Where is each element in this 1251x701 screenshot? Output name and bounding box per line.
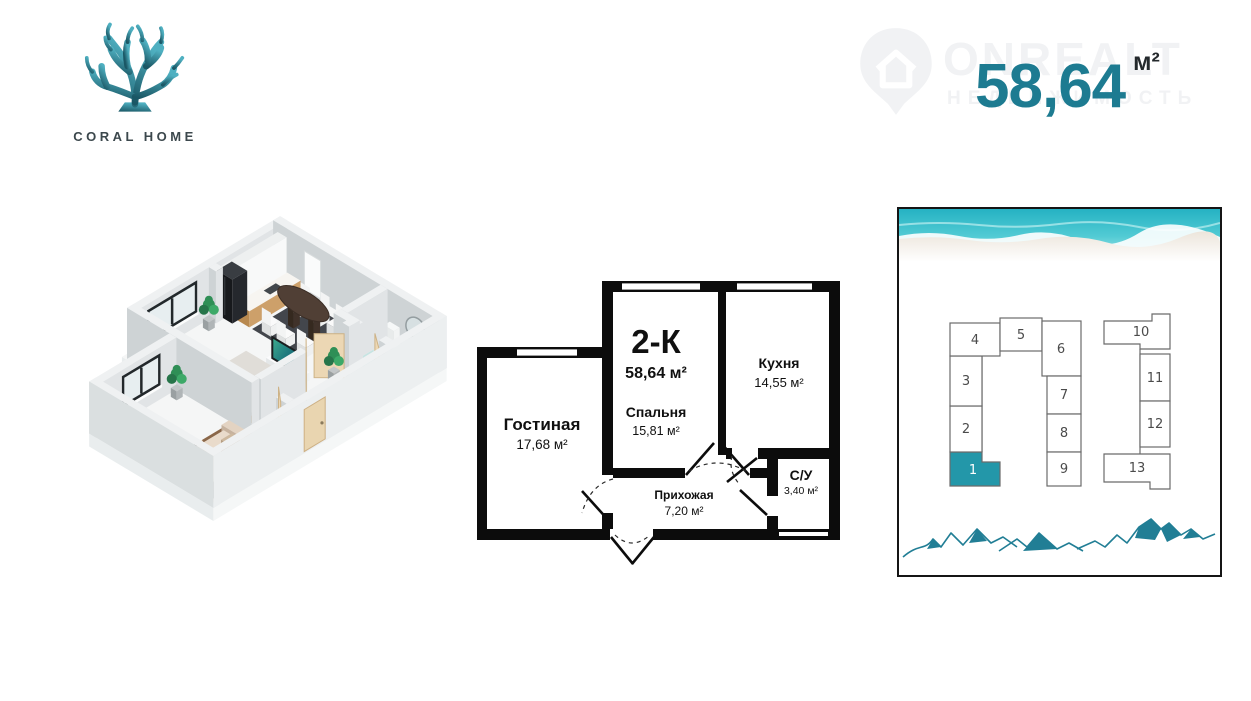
site-unit-label: 12 <box>1147 417 1164 432</box>
total-area-display: 58,64 м² <box>975 56 1125 118</box>
site-location-panel: 12345678910111213 <box>897 207 1222 577</box>
site-unit-label: 4 <box>971 333 979 348</box>
total-area-value: 58,64 <box>975 52 1125 121</box>
onrealt-pin-icon <box>855 24 937 118</box>
room-name-kitchen: Кухня <box>759 355 800 371</box>
mountain-art <box>899 499 1220 571</box>
site-unit-label: 9 <box>1060 462 1068 477</box>
site-unit-label: 7 <box>1060 388 1068 403</box>
site-unit-label: 11 <box>1147 371 1164 386</box>
room-area-hallway: 7,20 м² <box>665 504 704 518</box>
brand-logo-block: CORAL HOME <box>50 18 220 144</box>
room-name-living: Гостиная <box>504 415 581 435</box>
room-name-bedroom: Спальня <box>626 404 686 420</box>
brand-name: CORAL HOME <box>50 129 220 144</box>
floor-plan-2d: 2-К 58,64 м² Спальня 15,81 м² Кухня 14,5… <box>470 273 848 573</box>
real-estate-flyer: { "brand": { "name": "CORAL HOME" }, "wa… <box>0 0 1251 701</box>
beach-photo <box>899 209 1220 275</box>
site-unit-label: 6 <box>1057 342 1065 357</box>
room-area-bathroom: 3,40 м² <box>784 485 818 497</box>
site-diagram: 12345678910111213 <box>899 311 1220 496</box>
site-unit-label: 2 <box>962 422 970 437</box>
room-area-kitchen: 14,55 м² <box>754 375 803 390</box>
site-unit-label: 10 <box>1133 325 1150 340</box>
plan-total-area: 58,64 м² <box>625 365 687 383</box>
site-unit-label: 13 <box>1129 461 1146 476</box>
apartment-3d-render <box>25 190 455 582</box>
total-area-unit: м² <box>1133 48 1160 77</box>
room-area-living: 17,68 м² <box>516 437 567 452</box>
room-name-hallway: Прихожая <box>654 488 713 502</box>
site-unit-label: 8 <box>1060 426 1068 441</box>
coral-logo-icon <box>55 18 215 120</box>
room-area-bedroom: 15,81 м² <box>632 424 680 438</box>
site-unit-label: 5 <box>1017 328 1025 343</box>
site-unit-label: 3 <box>962 374 970 389</box>
room-name-bathroom: С/У <box>790 467 813 483</box>
plan-type-label: 2-К <box>631 323 680 361</box>
site-unit-label: 1 <box>969 463 977 478</box>
